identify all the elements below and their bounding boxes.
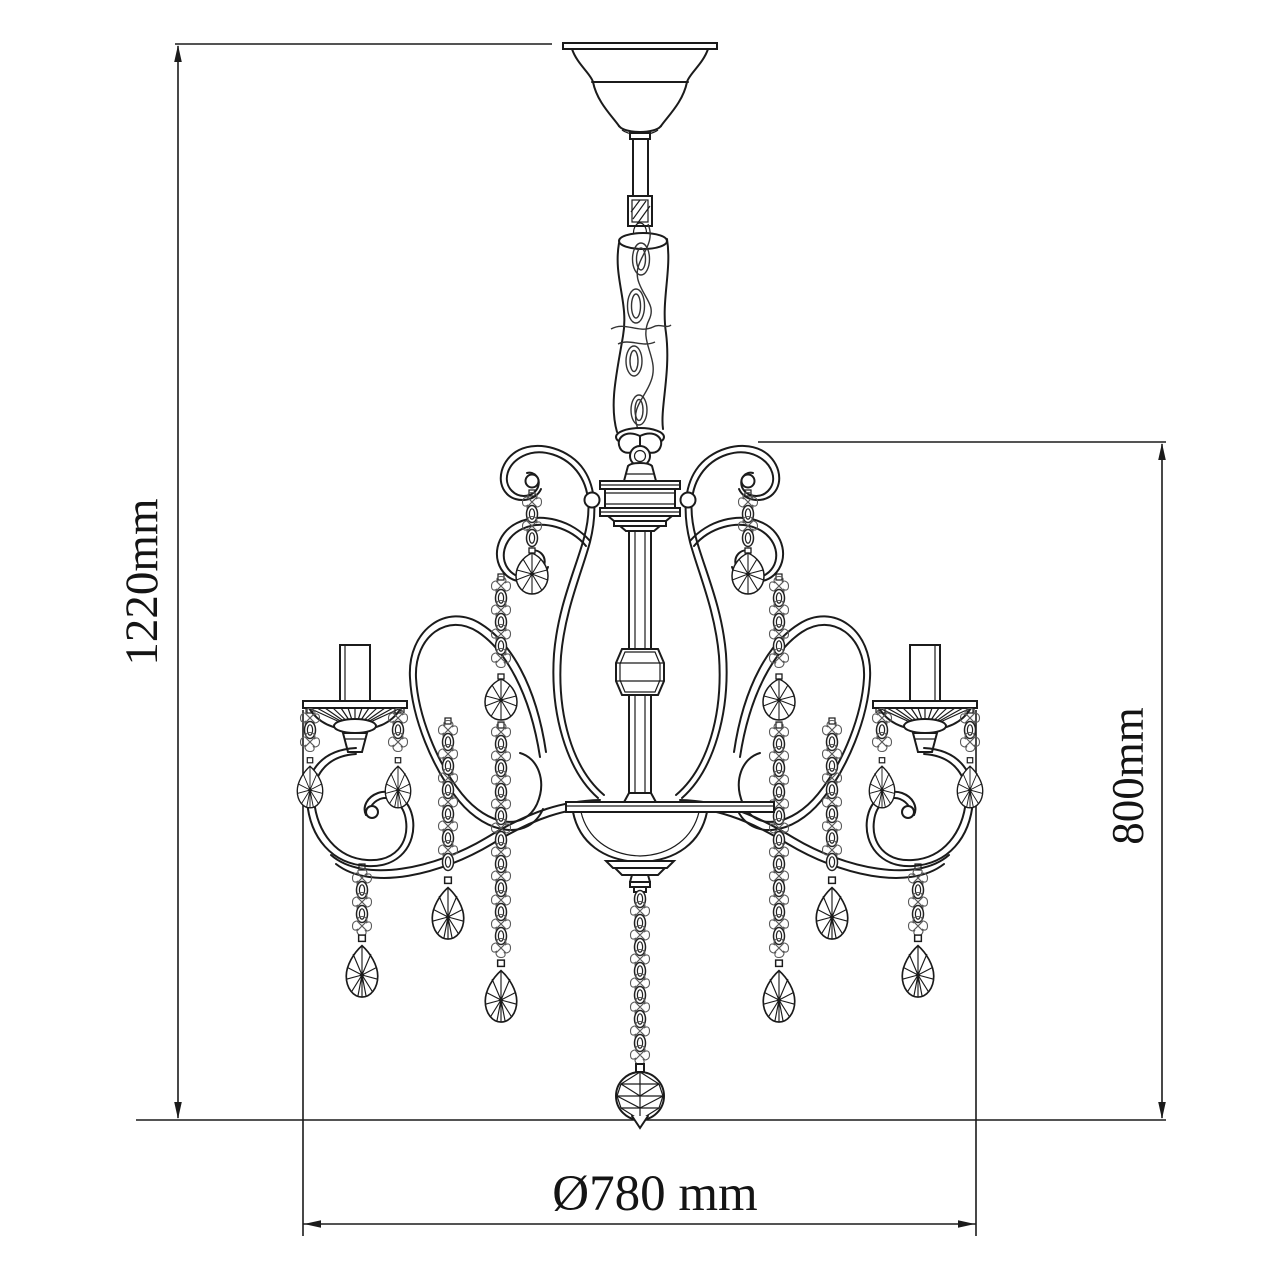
left-arm-assembly bbox=[297, 446, 604, 1022]
total-height-label: 1220mm bbox=[116, 498, 168, 665]
central-column bbox=[616, 531, 664, 804]
diameter-label: Ø780 mm bbox=[552, 1166, 757, 1222]
central-hub bbox=[585, 481, 696, 531]
body-height-label: 800mm bbox=[1103, 707, 1153, 845]
technical-drawing-page: 1220mm 800mm Ø780 mm bbox=[0, 0, 1280, 1280]
faceted-ball bbox=[616, 1064, 664, 1128]
fabric-wrapped-chain bbox=[611, 224, 671, 449]
center-bowl bbox=[566, 802, 774, 892]
center-crystal-chain bbox=[631, 891, 650, 1065]
canopy bbox=[563, 43, 717, 196]
right-arm-assembly bbox=[676, 446, 983, 1022]
cord bbox=[636, 224, 654, 449]
column-finial bbox=[619, 434, 661, 481]
hanger-stem bbox=[633, 139, 648, 196]
chandelier-technical-drawing: 1220mm 800mm Ø780 mm bbox=[0, 0, 1280, 1280]
